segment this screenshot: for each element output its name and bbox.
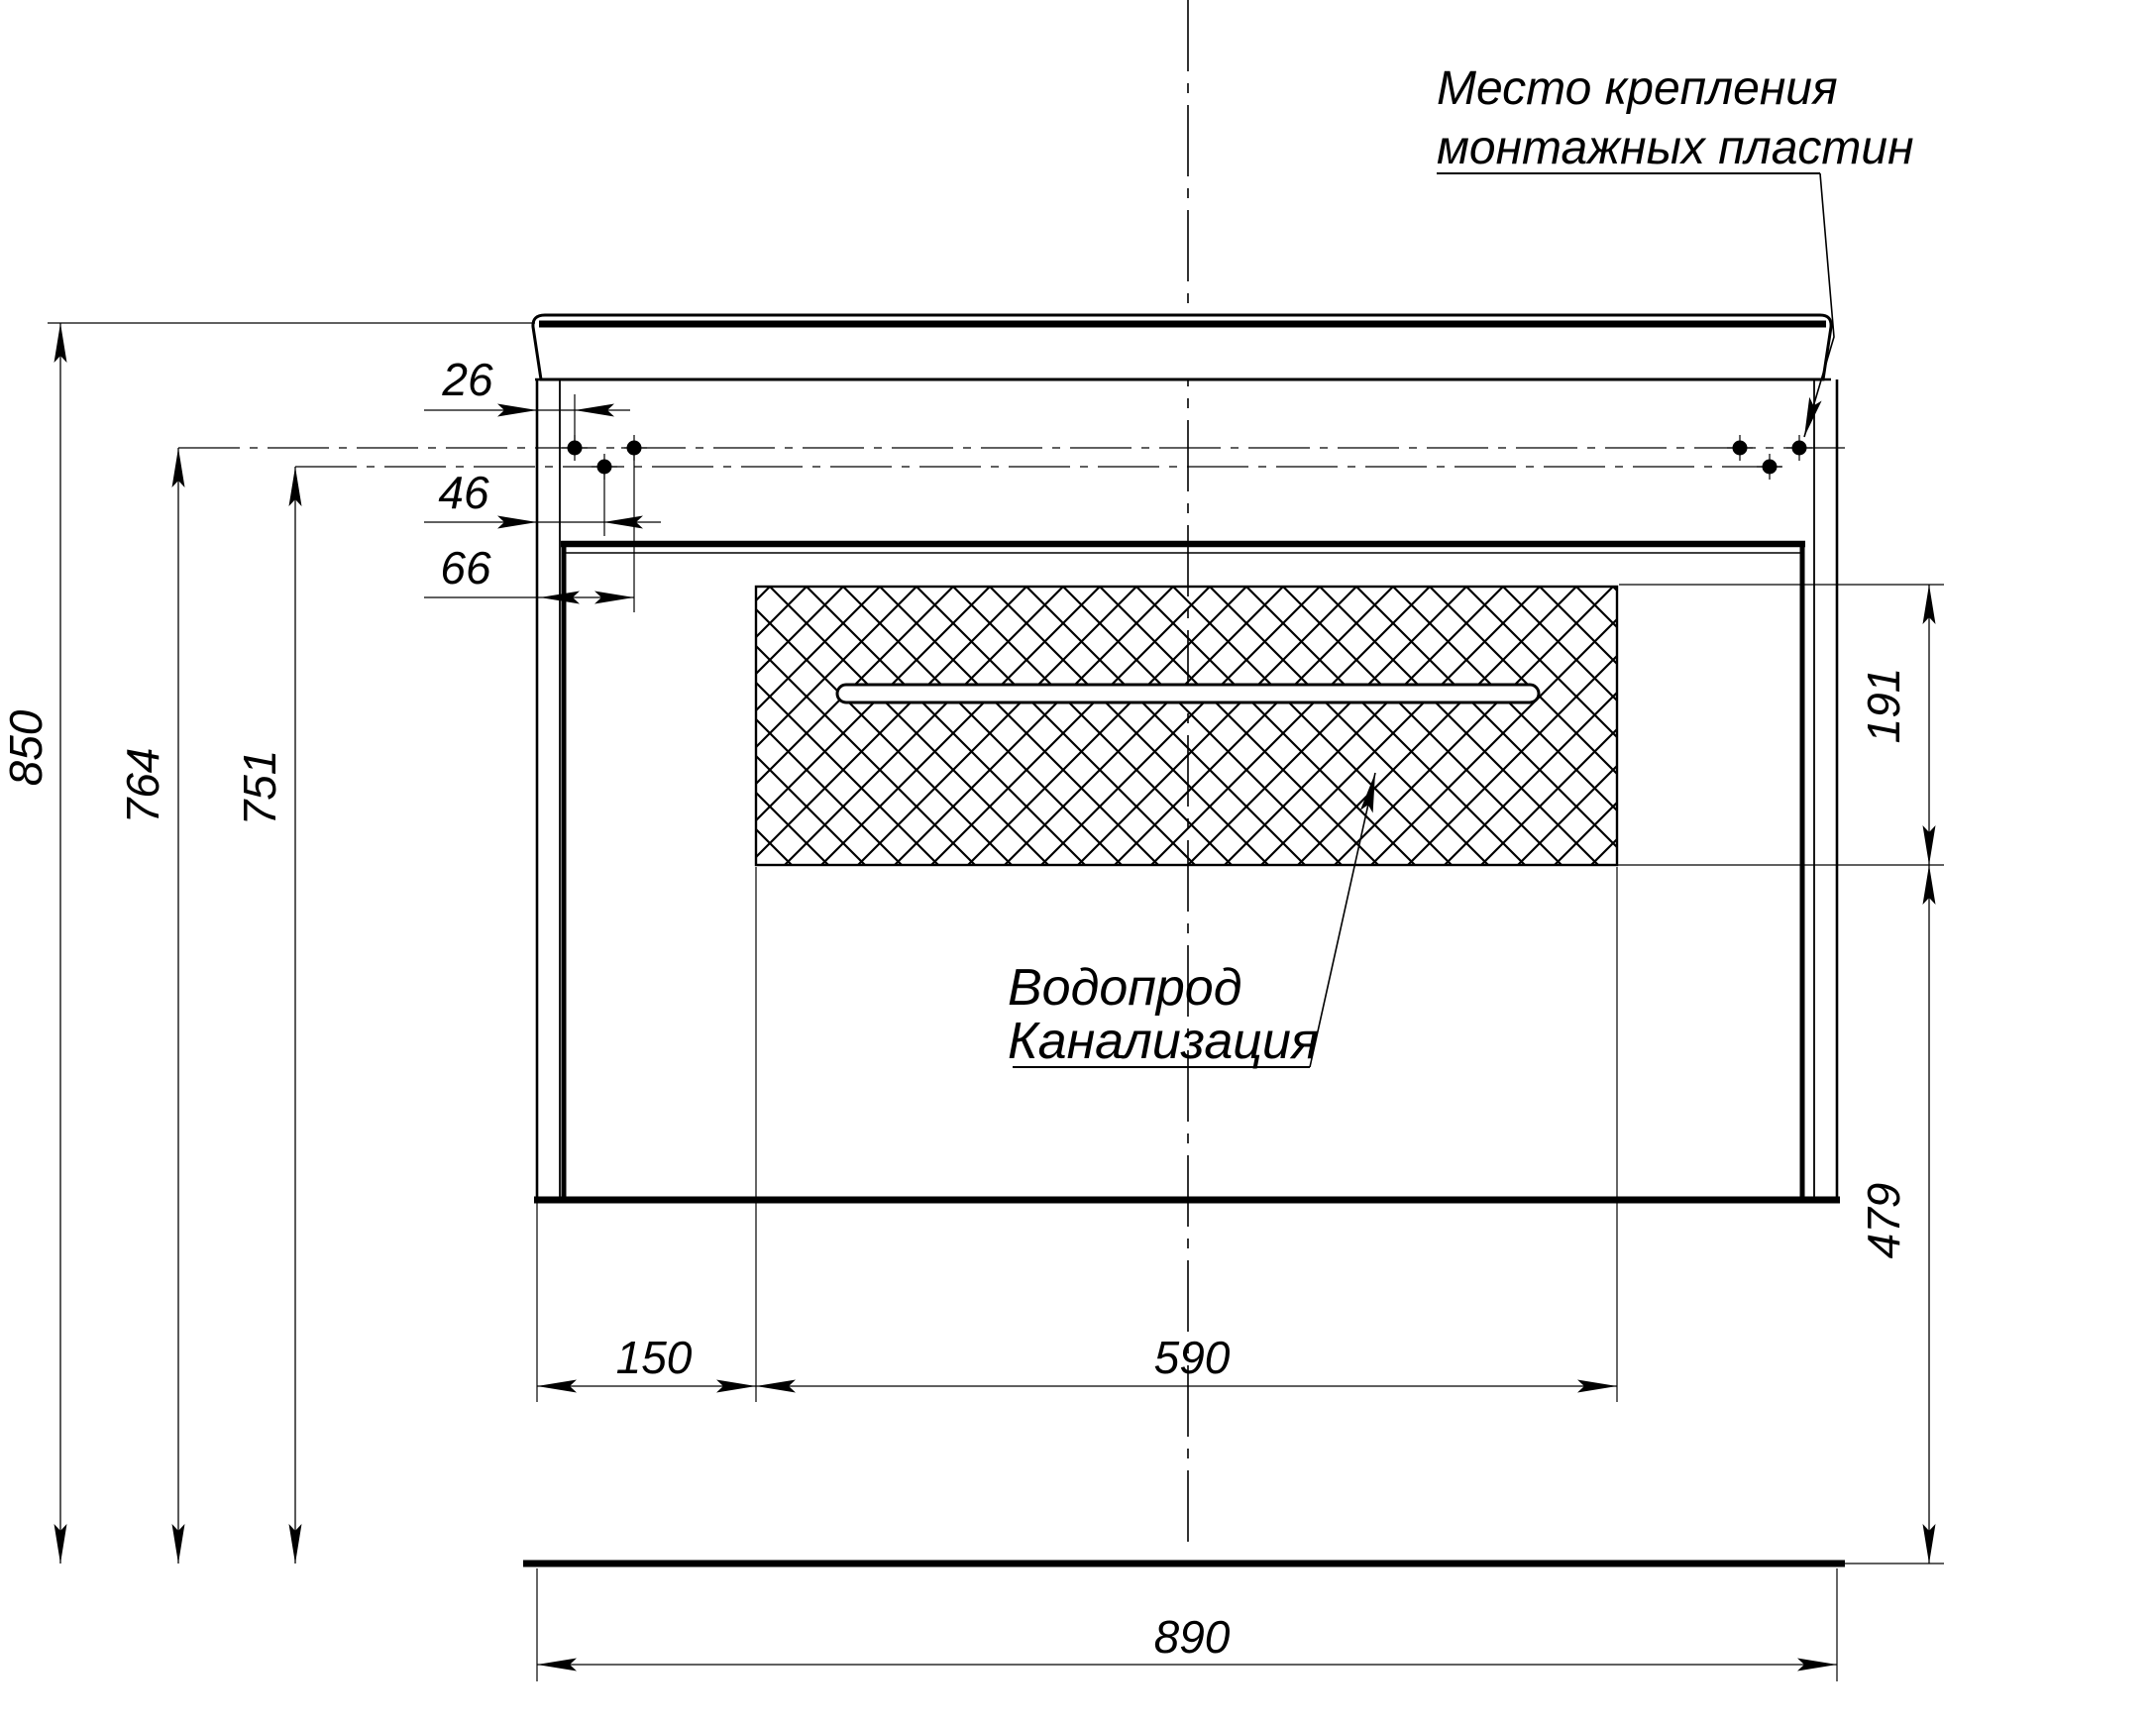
plumbing-label-line2: Канализация	[1008, 1013, 1319, 1070]
dim-clearance-479: 479	[1858, 865, 1936, 1564]
dim-label-764: 764	[117, 748, 168, 824]
mounting-label-line2: монтажных пластин	[1437, 122, 1914, 174]
plumbing-hatch-area	[756, 587, 1617, 865]
dim-cabinet-width-890: 890	[537, 1611, 1837, 1672]
drawing-sheet: 26 46 66 850 764 751 191	[0, 0, 2156, 1726]
mounting-hole-dot	[1727, 435, 1753, 461]
dim-label-590: 590	[1154, 1332, 1231, 1383]
mounting-holes	[562, 435, 1812, 480]
dim-label-890: 890	[1154, 1611, 1231, 1663]
dim-label-26: 26	[441, 354, 493, 405]
dim-label-46: 46	[438, 467, 489, 518]
dim-label-191: 191	[1858, 668, 1909, 744]
callout-arrowhead	[1804, 397, 1822, 437]
mounting-hole-dot	[1757, 454, 1782, 480]
dim-label-150: 150	[616, 1332, 693, 1383]
countertop	[533, 315, 1831, 379]
dim-label-66: 66	[440, 542, 491, 593]
dim-lower-holes-751: 751	[234, 467, 302, 1564]
dim-total-height-850: 850	[0, 323, 67, 1564]
dim-hole-offset-66: 66	[424, 542, 634, 604]
handle-slot	[837, 685, 1539, 702]
plumbing-label-line1: Водопрод	[1008, 959, 1241, 1017]
technical-drawing: 26 46 66 850 764 751 191	[0, 0, 2156, 1726]
dim-hole-offset-46: 46	[424, 467, 661, 529]
dim-hatch-height-191: 191	[1858, 585, 1936, 1564]
dim-hatch-offset-150: 150	[537, 1332, 1617, 1393]
dim-hatch-width-590: 590	[756, 1332, 1617, 1393]
mounting-label-line1: Место крепления	[1437, 62, 1838, 115]
dim-label-850: 850	[0, 709, 52, 786]
extension-lines	[48, 323, 1944, 1681]
mounting-centerlines	[178, 448, 1845, 467]
dim-label-751: 751	[234, 750, 285, 826]
dim-upper-holes-764: 764	[117, 448, 185, 1564]
dim-label-479: 479	[1858, 1183, 1909, 1259]
mounting-hole-dot	[1786, 435, 1812, 461]
